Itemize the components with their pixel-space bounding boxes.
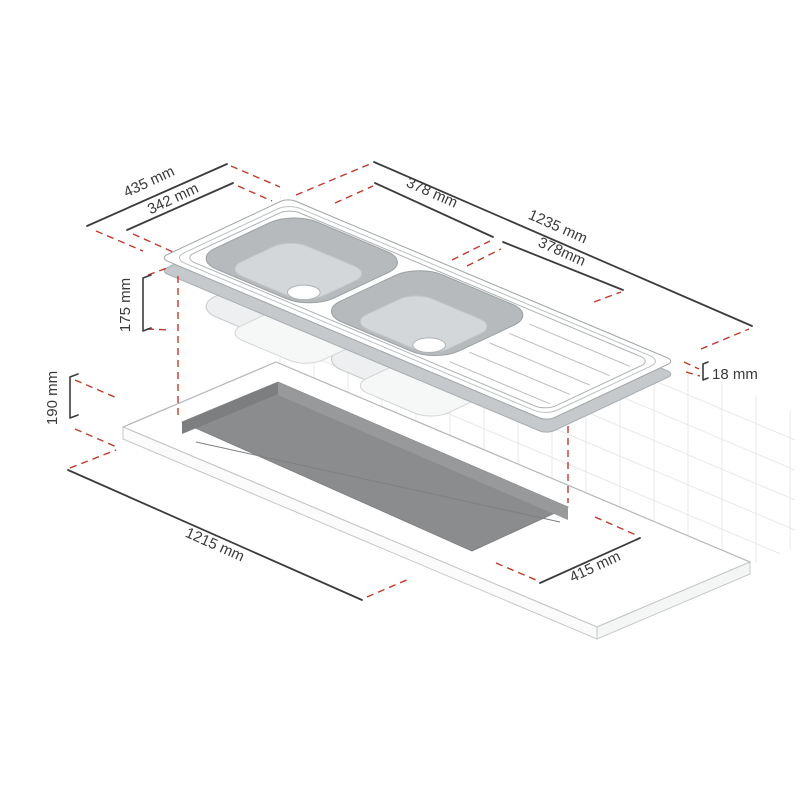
dim-label-1215: 1215 mm [183,524,247,565]
sink-dimension-diagram: 435 mm 342 mm 378 mm 1235 mm 378mm 175 m… [0,0,800,800]
diagram-canvas: 435 mm 342 mm 378 mm 1235 mm 378mm 175 m… [0,0,800,800]
dim-label-378-left: 378 mm [404,174,460,212]
dim-label-18: 18 mm [712,366,758,383]
bracket-175 [143,275,151,331]
bracket-18 [703,362,708,380]
dim-label-175: 175 mm [117,278,134,332]
dim-label-190: 190 mm [44,371,61,425]
